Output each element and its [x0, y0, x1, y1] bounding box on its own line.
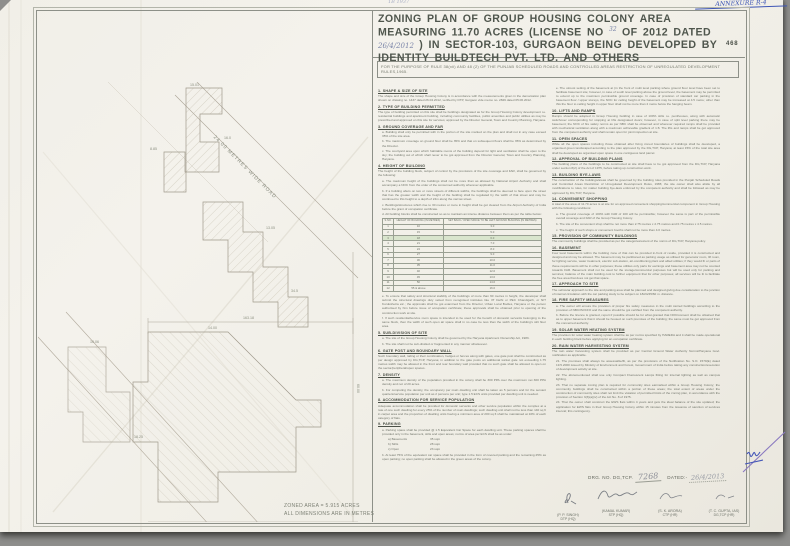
- list-item-label: c) Open: [388, 447, 430, 451]
- section-heading: 14. CONVENIENT SHOPPING: [552, 197, 720, 201]
- list-item: c) Open23 sqm: [388, 447, 546, 451]
- svg-text:15.01: 15.01: [190, 83, 199, 87]
- drg-no-label: DRG. NO. DG,TCP.: [588, 475, 633, 480]
- svg-text:8.85: 8.85: [150, 147, 157, 151]
- section-paragraph: The rain water harvesting system shall b…: [552, 349, 720, 357]
- section-paragraph: b. The site shall not be sub-divided or …: [378, 342, 546, 346]
- section-paragraph: b. The maximum coverage on ground floor …: [378, 139, 546, 147]
- section-heading: 15. PROVISION OF COMMUNITY BUILDINGS: [552, 234, 720, 238]
- table-row: 1255 & above16.0: [383, 286, 542, 292]
- dated-label: DATED:-: [667, 475, 687, 480]
- table-cell: 12: [383, 286, 394, 292]
- section-heading: 6. GATE POST AND BOUNDARY WALL: [378, 349, 546, 353]
- clauses-column-right: e. The utmost setting of the basement at…: [552, 86, 720, 468]
- section-paragraph: 22. The aforementioned shall use only Co…: [552, 373, 720, 381]
- svg-text:18.25: 18.25: [134, 435, 143, 439]
- page-number: 468: [726, 41, 738, 47]
- section-heading: 4. HEIGHT OF BUILDING: [378, 164, 546, 168]
- scanned-document: 1B 1937 ANNEXURE R-4 ZONING PLAN OF GROU…: [0, 0, 790, 546]
- table-cell: 55 & above: [393, 286, 443, 292]
- list-item-value: 28 sqm: [430, 442, 440, 446]
- section-heading: 5. SUB-DIVISION OF SITE: [378, 331, 546, 335]
- paper-crease: [20, 0, 22, 532]
- title-block: ZONING PLAN OF GROUP HOUSING COLONY AREA…: [378, 13, 740, 65]
- section-paragraph: a. The site of the Group Housing Colony …: [378, 336, 546, 340]
- setback-table: S.NO.HEIGHT OF BUILDING (IN METRES)SET B…: [382, 218, 542, 291]
- section-paragraph: The height of the building block, subjec…: [378, 169, 546, 177]
- section-paragraph: e. To ensure that safety and structural …: [378, 294, 546, 314]
- list-item-label: b) Stilts: [388, 442, 430, 446]
- drg-no-handwritten: 7268: [634, 471, 661, 483]
- section-paragraph: a. The owner will ensure the provision o…: [552, 304, 720, 312]
- section-heading: 13. BUILDING BYE-LAWS: [552, 173, 720, 177]
- section-paragraph: While all the open spaces including thos…: [552, 142, 720, 154]
- section-heading: 2. TYPE OF BUILDING PERMITTED: [378, 105, 546, 109]
- section-paragraph: The provision for solar water heating sy…: [552, 333, 720, 341]
- section-paragraph: 23. That no separate zoning plan is requ…: [552, 383, 720, 399]
- license-date-handwritten: 26/4/2012: [378, 42, 414, 50]
- section-paragraph: Adequate accommodation shall be provided…: [378, 404, 546, 420]
- svg-text:10.06: 10.06: [90, 340, 99, 344]
- title-text: OF 2012 DATED: [622, 26, 711, 38]
- section-paragraph: b. If a building abuts on two or more st…: [378, 189, 546, 201]
- section-heading: 12. APPROVAL OF BUILDING PLANS: [552, 157, 720, 161]
- list-item-value: 35 sqm: [430, 437, 440, 441]
- section-paragraph: d. All building blocks shall be construc…: [378, 212, 546, 216]
- section-heading: 1. SHAPE & SIZE OF SITE: [378, 89, 546, 93]
- section-paragraph: The type of building permitted on this s…: [378, 110, 546, 122]
- svg-text:16.0: 16.0: [224, 136, 231, 140]
- svg-text:163.18: 163.18: [243, 316, 254, 320]
- section-paragraph: Such boundary wall, railing or their com…: [378, 354, 546, 370]
- parking-norms-list: a) Basements35 sqmb) Stilts28 sqmc) Open…: [388, 437, 546, 450]
- section-paragraph: a. Building shall only be permitted with…: [378, 130, 546, 138]
- signatory-title: DTP (HQ): [530, 517, 606, 521]
- svg-text:13.05: 13.05: [266, 226, 275, 230]
- paper-sheet: 1B 1937 ANNEXURE R-4 ZONING PLAN OF GROU…: [0, 0, 783, 532]
- purpose-note: FOR THE PURPOSE OF RULE 38(xii) AND 48 (…: [377, 61, 739, 78]
- section-heading: 7. DENSITY: [378, 373, 546, 377]
- plot-boundary: [68, 88, 321, 502]
- list-item-label: a) Basements: [388, 437, 430, 441]
- signature-squiggle-icon: [706, 490, 742, 503]
- section-heading: 8. ACCOMMODATION FOR SERVICE POPULATION: [378, 398, 546, 402]
- table-cell: 16.0: [443, 286, 541, 292]
- section-paragraph: b. For computing the density, the occupa…: [378, 388, 546, 396]
- paper-corner-fold: [0, 0, 11, 11]
- dated-handwritten: 26/4/2013: [689, 472, 727, 483]
- list-item-value: 23 sqm: [430, 447, 440, 451]
- section-heading: 16. BASEMENT: [552, 246, 720, 250]
- section-paragraph: The community buildings shall be provide…: [552, 239, 720, 243]
- section-paragraph: a. The maximum height of the buildings s…: [378, 179, 546, 187]
- section-heading: 17. APPROACH TO SITE: [552, 282, 720, 286]
- section-paragraph: The vehicular approach to the site and p…: [552, 288, 720, 296]
- list-item: b) Stilts28 sqm: [388, 442, 546, 446]
- section-paragraph: e. The utmost setting of the basement at…: [552, 86, 720, 106]
- section-paragraph: The shape and size of the Group Housing …: [378, 94, 546, 102]
- section-paragraph: A total of the area of 11.70 acres is at…: [552, 202, 720, 210]
- section-heading: 19. SOLAR WATER HEATING SYSTEM: [552, 328, 720, 332]
- section-heading: 9. PARKING: [378, 422, 546, 426]
- section-paragraph: b. At least 75% of the equivalent car sp…: [378, 453, 546, 461]
- signatory-title: DG,TCP (HR): [686, 513, 762, 517]
- section-paragraph: a. The ground coverage of 100% with FAR …: [552, 212, 720, 220]
- section-paragraph: b. Before the licence is granted, report…: [552, 313, 720, 325]
- section-paragraph: The construction of the buildings/areas …: [552, 178, 720, 194]
- section-paragraph: a. The maximum density of the population…: [378, 378, 546, 386]
- section-paragraph: a. Parking space shall be provided @ 1.5…: [378, 428, 546, 436]
- clauses-column-left: 1. SHAPE & SIZE OF SITEThe shape and siz…: [378, 86, 546, 524]
- section-paragraph: c. The courtyard area upon which habitab…: [378, 149, 546, 161]
- signature-block: (T. C. GUPTA, IAS) DG,TCP (HR): [686, 490, 762, 517]
- license-no-handwritten: 32: [609, 26, 617, 33]
- section-paragraph: 24. That the owner shall construct the E…: [552, 400, 720, 412]
- section-heading: 3. GROUND COVERAGE AND FAR: [378, 125, 546, 129]
- paper-crease: [8, 0, 10, 532]
- svg-text:14.00: 14.00: [208, 326, 217, 330]
- section-heading: 11. OPEN SPACES: [552, 137, 720, 141]
- list-item: a) Basements35 sqm: [388, 437, 546, 441]
- margin-scribble-icon: [733, 428, 789, 480]
- section-heading: 10. LIFTS AND RAMPS: [552, 109, 720, 113]
- section-paragraph: f. If such residential/service room spac…: [378, 316, 546, 328]
- section-paragraph: c. Buildings/structures which rise to 30…: [378, 203, 546, 211]
- section-paragraph: 21. The premises shall always be assessa…: [552, 359, 720, 371]
- svg-text:60.00: 60.00: [356, 384, 360, 393]
- section-paragraph: c. The height of such shops or convenien…: [552, 228, 720, 232]
- handwritten-top-mark: 1B 1937: [388, 0, 409, 5]
- site-plan-drawing: 24.00 METRES WIDE ROAD: [38, 82, 373, 522]
- road-label: 24.00 METRES WIDE ROAD: [212, 134, 278, 200]
- drawing-number-line: DRG. NO. DG,TCP. 7268 DATED:- 26/4/2013: [588, 472, 746, 482]
- signature-squiggle-icon: [652, 489, 688, 503]
- section-heading: 18. FIRE SAFETY MEASURES: [552, 298, 720, 302]
- section-paragraph: Four level basements within the building…: [552, 251, 720, 280]
- svg-text:34.5: 34.5: [291, 289, 298, 293]
- section-paragraph: b. The site of the convenient shop shall…: [552, 222, 720, 226]
- section-paragraph: The building plans of the buildings to b…: [552, 162, 720, 170]
- section-heading: 20. RAIN WATER HARVESTING SYSTEM: [552, 344, 720, 348]
- section-paragraph: Ramps should be adopted in Group Housing…: [552, 114, 720, 134]
